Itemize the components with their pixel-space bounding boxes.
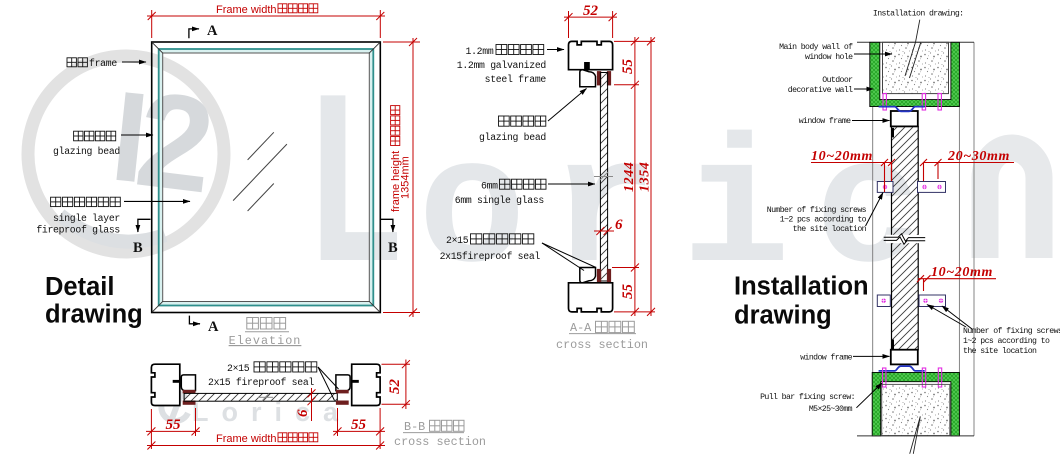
svg-text:1244: 1244 <box>622 162 637 192</box>
svg-text:1~2 pcs according to: 1~2 pcs according to <box>963 336 1050 346</box>
svg-text:Frame width: Frame width <box>216 433 277 445</box>
svg-text:6mm: 6mm <box>481 181 498 192</box>
svg-text:55: 55 <box>166 417 182 433</box>
svg-text:2×15: 2×15 <box>446 235 469 246</box>
svg-text:2x15 fireproof seal: 2x15 fireproof seal <box>208 377 314 388</box>
svg-text:1354: 1354 <box>638 162 653 192</box>
svg-text:6: 6 <box>295 409 311 417</box>
svg-text:B-B: B-B <box>404 420 425 434</box>
svg-text:1~2 pcs according to: 1~2 pcs according to <box>780 215 867 225</box>
svg-text:glazing bead: glazing bead <box>53 146 120 157</box>
svg-text:the site location: the site location <box>963 346 1037 356</box>
svg-text:drawing: drawing <box>45 301 143 329</box>
svg-text:Elevation: Elevation <box>229 334 302 348</box>
svg-text:Installation: Installation <box>734 273 869 301</box>
svg-text:52: 52 <box>387 379 403 395</box>
svg-text:Number of fixing screws: Number of fixing screws <box>963 326 1060 336</box>
svg-text:Detail: Detail <box>45 273 114 301</box>
svg-text:2x15fireproof seal: 2x15fireproof seal <box>440 251 541 262</box>
svg-text:55: 55 <box>620 59 636 75</box>
svg-text:1.2mm: 1.2mm <box>466 46 494 57</box>
svg-text:window hole: window hole <box>805 52 853 62</box>
svg-text:2×15: 2×15 <box>227 363 250 374</box>
svg-text:frame: frame <box>89 58 117 69</box>
svg-text:10~20mm: 10~20mm <box>811 149 873 164</box>
svg-text:Main body wall of: Main body wall of <box>779 42 853 52</box>
svg-text:Installation drawing:: Installation drawing: <box>873 9 964 19</box>
svg-text:window frame: window frame <box>800 353 852 363</box>
svg-text:55: 55 <box>620 284 636 300</box>
svg-text:glazing bead: glazing bead <box>479 132 546 143</box>
svg-text:Number of fixing screws: Number of fixing screws <box>767 205 867 215</box>
svg-text:55: 55 <box>351 417 367 433</box>
svg-text:6: 6 <box>615 217 623 233</box>
svg-text:cross section: cross section <box>394 435 486 449</box>
svg-text:fireproof glass: fireproof glass <box>36 225 120 236</box>
svg-text:decorative wall: decorative wall <box>788 85 853 95</box>
svg-text:the site location: the site location <box>793 224 867 234</box>
svg-text:Pull bar fixing screw:: Pull bar fixing screw: <box>760 392 855 402</box>
svg-text:Outdoor: Outdoor <box>822 75 853 85</box>
svg-text:M5×25~30mm: M5×25~30mm <box>809 405 853 414</box>
svg-text:A: A <box>207 23 218 39</box>
svg-text:20~30mm: 20~30mm <box>947 149 1010 164</box>
svg-text:Frame width: Frame width <box>216 4 277 16</box>
svg-text:1354mm: 1354mm <box>400 156 412 199</box>
svg-text:10~20mm: 10~20mm <box>931 265 993 280</box>
svg-text:single layer: single layer <box>53 213 120 224</box>
svg-text:drawing: drawing <box>734 302 832 330</box>
svg-text:A-A: A-A <box>570 321 592 335</box>
svg-text:cross section: cross section <box>556 338 648 352</box>
svg-text:6mm single glass: 6mm single glass <box>455 195 545 206</box>
svg-text:B: B <box>388 240 398 256</box>
svg-text:52: 52 <box>583 3 599 19</box>
svg-text:steel frame: steel frame <box>485 74 547 85</box>
svg-text:B: B <box>133 240 143 256</box>
svg-text:A: A <box>208 319 219 335</box>
svg-text:1.2mm galvanized: 1.2mm galvanized <box>457 60 547 71</box>
svg-text:window frame: window frame <box>799 116 851 126</box>
